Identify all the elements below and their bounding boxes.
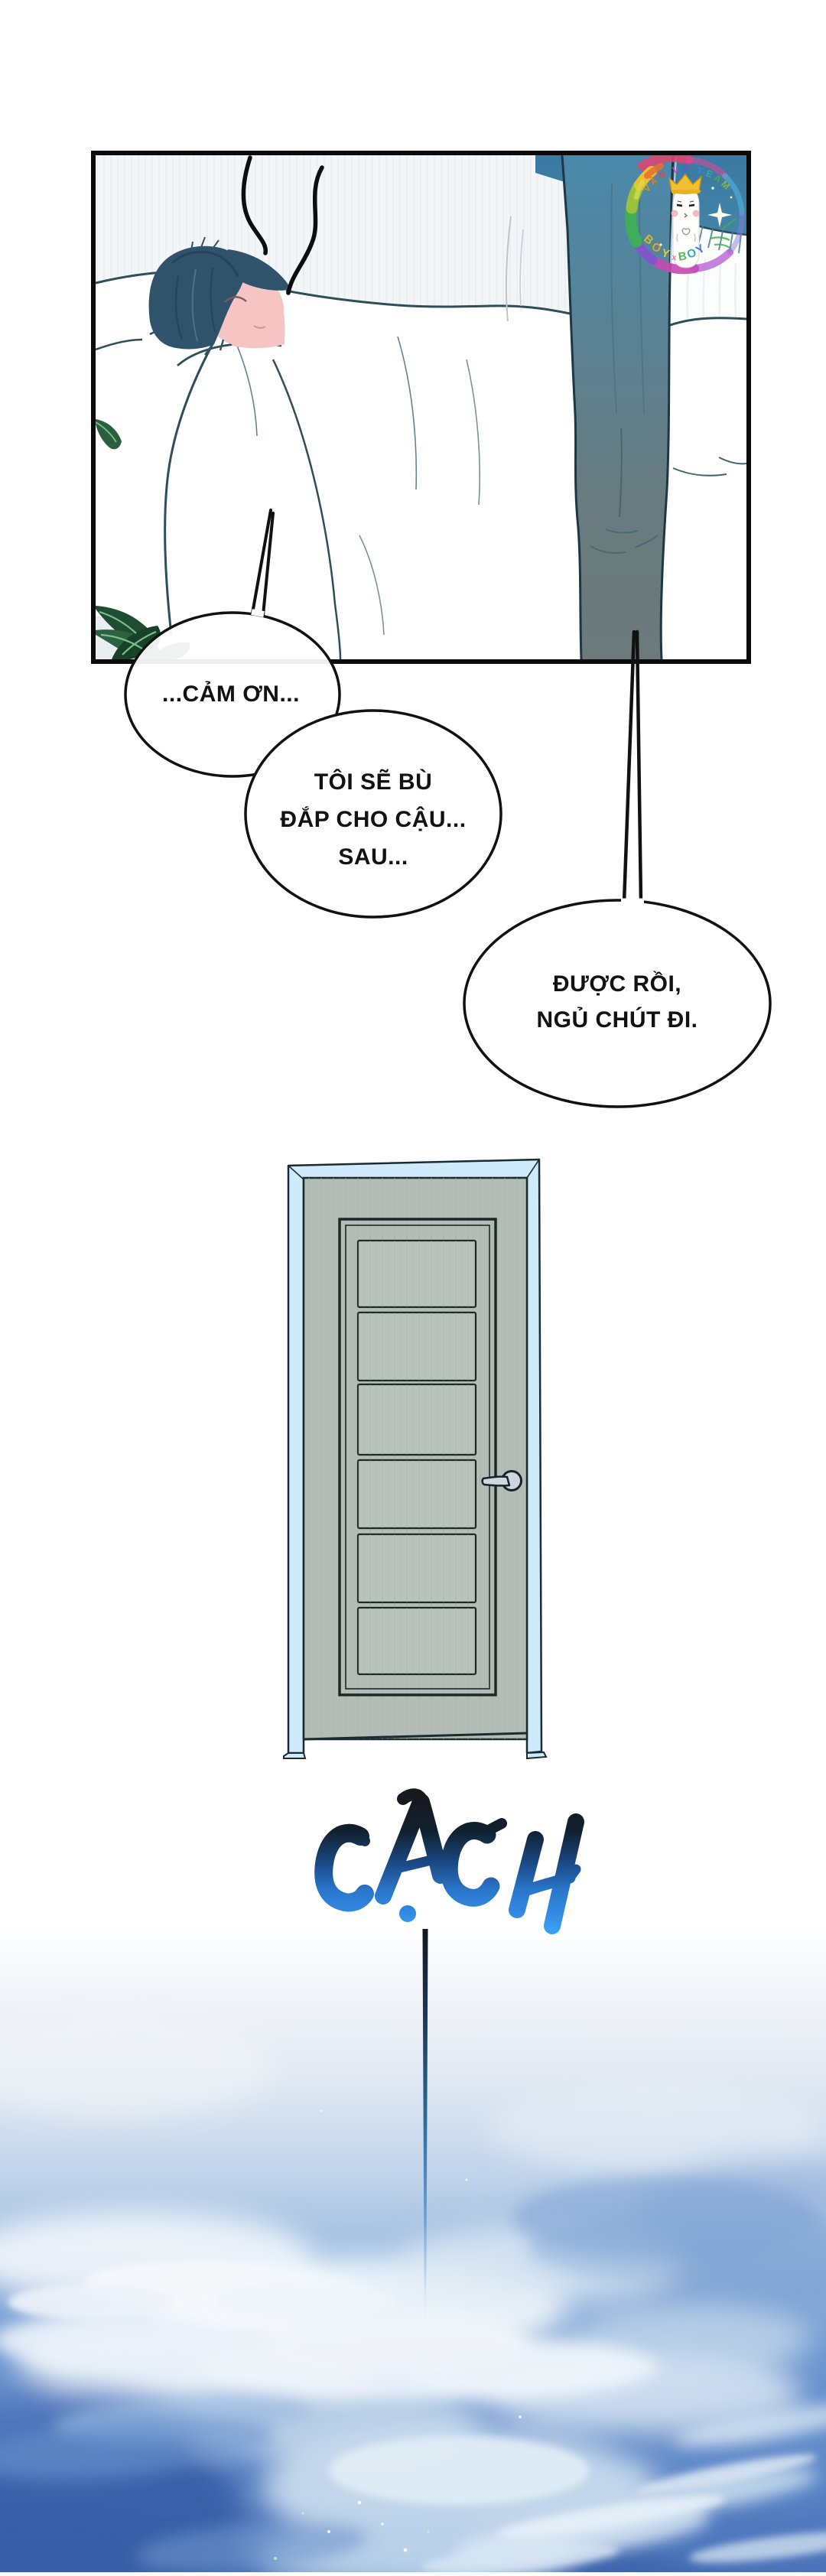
svg-text:ĐẮP CHO CẬU...: ĐẮP CHO CẬU... [280,806,466,832]
svg-text:NGỦ CHÚT ĐI.: NGỦ CHÚT ĐI. [537,1007,698,1033]
svg-text:TÔI SẼ BÙ: TÔI SẼ BÙ [314,769,433,795]
svg-text:Ậ: Ậ [683,162,690,174]
svg-text:...CẢM ƠN...: ...CẢM ƠN... [162,681,300,707]
svg-text:SAU...: SAU... [338,844,408,870]
svg-text:ĐƯỢC RỒI,: ĐƯỢC RỒI, [553,971,681,997]
